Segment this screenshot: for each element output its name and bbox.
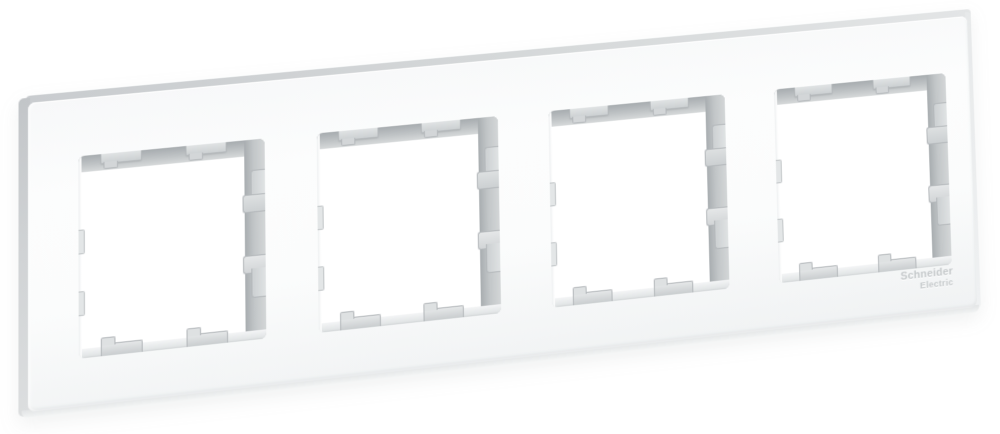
clip-tab-left-lower: [318, 266, 324, 291]
clip-tab-bottom-left: [101, 339, 143, 356]
frame-opening-4: [774, 73, 952, 283]
clip-tab-left-upper: [550, 182, 556, 207]
clip-tab-right-upper: [242, 169, 265, 214]
clip-tab-bottom-left: [340, 314, 381, 331]
frame-opening-2: [317, 116, 502, 333]
clip-tab-bottom-right: [187, 330, 229, 347]
clip-tab-right-upper: [476, 146, 499, 190]
product-photo: Schneider Electric: [0, 0, 1000, 434]
frame-front-face: Schneider Electric: [28, 16, 977, 412]
clip-tab-right-upper: [704, 124, 726, 167]
clip-tab-bottom-right: [654, 280, 694, 296]
clip-tab-left-lower: [551, 242, 557, 267]
clip-tab-right-lower: [478, 230, 501, 274]
clip-tab-bottom-right: [423, 305, 464, 321]
opening-inner-left-wall: [774, 89, 782, 283]
clip-tab-left-lower: [777, 218, 783, 242]
clip-tab-left-lower: [79, 291, 85, 316]
clip-tab-left-upper: [78, 229, 84, 254]
clip-tab-left-upper: [776, 159, 782, 183]
opening-inner-left-wall: [78, 156, 82, 359]
clip-tab-left-upper: [317, 205, 323, 230]
frame-opening-1: [78, 138, 266, 358]
clip-tab-right-lower: [706, 206, 728, 250]
opening-inner-left-wall: [548, 111, 555, 308]
opening-inner-left-wall: [317, 133, 322, 333]
clip-tab-bottom-left: [573, 289, 613, 305]
frame-opening-3: [548, 94, 729, 307]
clip-tab-right-upper: [926, 102, 948, 145]
clip-tab-right-lower: [928, 184, 950, 227]
clip-tab-bottom-left: [799, 265, 838, 281]
clip-tab-right-lower: [243, 254, 266, 299]
wall-switch-frame: Schneider Electric: [28, 16, 977, 412]
